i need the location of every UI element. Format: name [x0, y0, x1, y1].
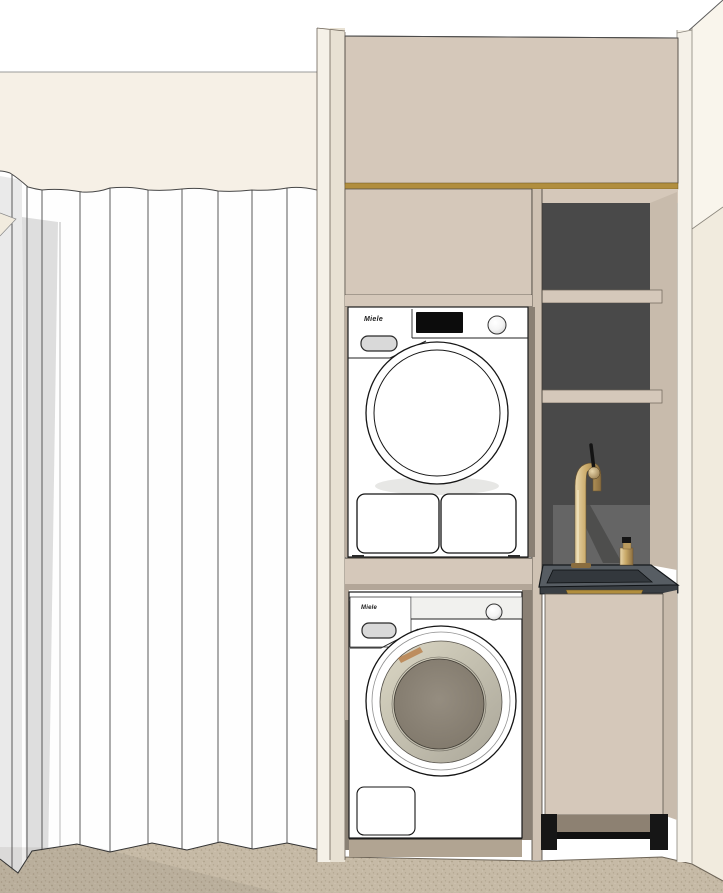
washer-under-shadow: [349, 839, 522, 857]
washer-niche-right-shadow: [522, 590, 532, 840]
dryer-drawer-left: [357, 494, 439, 553]
cabinet-leg-right: [650, 814, 668, 850]
shelf-board-2: [542, 390, 662, 403]
mid-shelf-board: [345, 558, 532, 584]
upper-cabinet-panel: [345, 36, 678, 184]
cabinet-leg-left: [541, 814, 557, 850]
soap-neck: [623, 542, 631, 549]
left-stile-side: [330, 28, 345, 862]
sink-cabinet: [541, 590, 677, 850]
render-canvas: Miele Miele: [0, 0, 723, 893]
mid-shelf: [345, 558, 532, 590]
washer-detergent-handle: [362, 623, 396, 638]
faucet-lever-ball: [588, 467, 600, 479]
dryer-detergent-handle: [361, 336, 397, 351]
sink-cabinet-door: [545, 594, 663, 815]
laundry-room-render: Miele Miele: [0, 0, 723, 893]
dryer-display: [416, 312, 463, 333]
curtain-shadow-left: [0, 176, 22, 874]
mid-shelf-underside: [345, 584, 532, 590]
leg-crossbar: [553, 832, 655, 839]
left-stile-face: [317, 28, 330, 862]
dryer-door: [366, 342, 508, 484]
dryer-niche-top: [345, 295, 532, 307]
cubby-top: [542, 203, 650, 290]
sink-cabinet-side: [663, 590, 677, 820]
washer-brand-logo: Miele: [361, 605, 377, 611]
washer-drum: [394, 659, 484, 749]
shelf-board-1: [542, 290, 662, 303]
washer-fascia: [411, 597, 522, 619]
soap-cap: [622, 537, 631, 543]
mid-cabinet-door: [345, 189, 532, 295]
dryer-knob: [488, 316, 506, 334]
accordion-curtain: [0, 174, 317, 880]
gold-trim: [345, 183, 678, 189]
dryer: Miele: [345, 295, 535, 560]
washer: Miele: [345, 590, 532, 857]
washer-niche-left-shadow-low: [345, 720, 349, 850]
sink-basin: [547, 570, 652, 583]
shelf-side-panel: [650, 192, 677, 570]
faucet-base: [571, 563, 591, 568]
soap-body: [620, 548, 633, 565]
dryer-drawer-right: [441, 494, 516, 553]
dryer-brand-logo: Miele: [364, 316, 383, 323]
valance-panel: [0, 72, 317, 192]
washer-service-flap: [357, 787, 415, 835]
right-wall-lower: [692, 207, 723, 893]
right-stile-face: [677, 30, 692, 862]
cubby-middle: [542, 303, 650, 390]
washer-knob: [486, 604, 502, 620]
